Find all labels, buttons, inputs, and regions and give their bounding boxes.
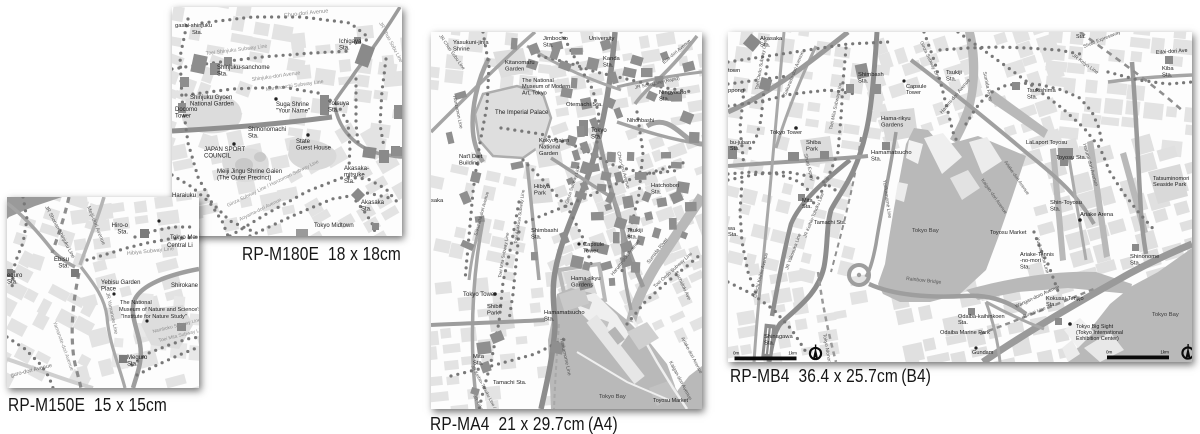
svg-text:Nat'l DietBuilding: Nat'l DietBuilding — [459, 154, 483, 166]
svg-text:Tokyo Bay: Tokyo Bay — [912, 228, 939, 234]
svg-text:0m: 0m — [1106, 350, 1113, 355]
svg-text:"Institute for Nature Study": "Institute for Nature Study" — [121, 314, 187, 320]
svg-text:Museum of Nature and Science's: Museum of Nature and Science's — [119, 307, 199, 313]
svg-text:University: University — [589, 36, 615, 42]
svg-text:Suga Shrine"Your Name": Suga Shrine"Your Name" — [276, 102, 310, 115]
svg-text:Toyosu Sta.: Toyosu Sta. — [1056, 155, 1087, 161]
svg-text:Tokyo Bay: Tokyo Bay — [599, 394, 626, 400]
svg-text:Otemachi Sta.: Otemachi Sta. — [566, 102, 603, 108]
svg-text:1km: 1km — [788, 351, 797, 356]
svg-text:Tokyo Tower: Tokyo Tower — [463, 292, 496, 298]
svg-text:0m: 0m — [733, 351, 740, 356]
svg-text:Toyosu Market: Toyosu Market — [990, 230, 1027, 236]
svg-text:TatsuminomoriSeaside Park: TatsuminomoriSeaside Park — [1153, 176, 1189, 188]
svg-text:Shirokane: Shirokane — [171, 283, 199, 289]
svg-text:Tokyo Bay: Tokyo Bay — [1152, 312, 1179, 318]
svg-text:LaLaport Toyosu: LaLaport Toyosu — [1026, 140, 1067, 146]
svg-text:Nihonbashi: Nihonbashi — [627, 118, 654, 124]
svg-text:Sta.: Sta. — [192, 30, 203, 36]
svg-text:Tokyo Tower: Tokyo Tower — [770, 130, 802, 136]
svg-text:Shinjuku GyoenNational Garden: Shinjuku GyoenNational Garden — [190, 95, 234, 108]
svg-text:Tamachi Sta.: Tamachi Sta. — [493, 380, 527, 386]
svg-text:Sta.: Sta. — [1076, 34, 1086, 40]
svg-text:Toyosu Market: Toyosu Market — [653, 398, 689, 404]
svg-text:Gundam: Gundam — [972, 350, 994, 356]
svg-text:1km: 1km — [1160, 350, 1169, 355]
svg-text:The National: The National — [120, 300, 152, 306]
svg-text:Ariake Arena: Ariake Arena — [1080, 212, 1114, 218]
svg-text:MitaSta.: MitaSta. — [802, 198, 813, 210]
svg-text:The Imperial Palace: The Imperial Palace — [495, 110, 549, 116]
svg-text:gashi-shinjuku: gashi-shinjuku — [175, 23, 212, 29]
svg-text:Tokyo Midtown: Tokyo Midtown — [314, 223, 354, 229]
svg-text:saka: saka — [431, 198, 444, 204]
svg-text:Tamachi Sta.: Tamachi Sta. — [814, 220, 847, 226]
svg-text:Tokyo Me: Tokyo Me — [170, 235, 196, 241]
svg-text:MitaSta.: MitaSta. — [473, 354, 485, 366]
svg-text:Odaiba Marine Park: Odaiba Marine Park — [940, 330, 990, 336]
svg-text:ppong: ppong — [728, 88, 744, 94]
svg-text:town: town — [728, 68, 740, 74]
